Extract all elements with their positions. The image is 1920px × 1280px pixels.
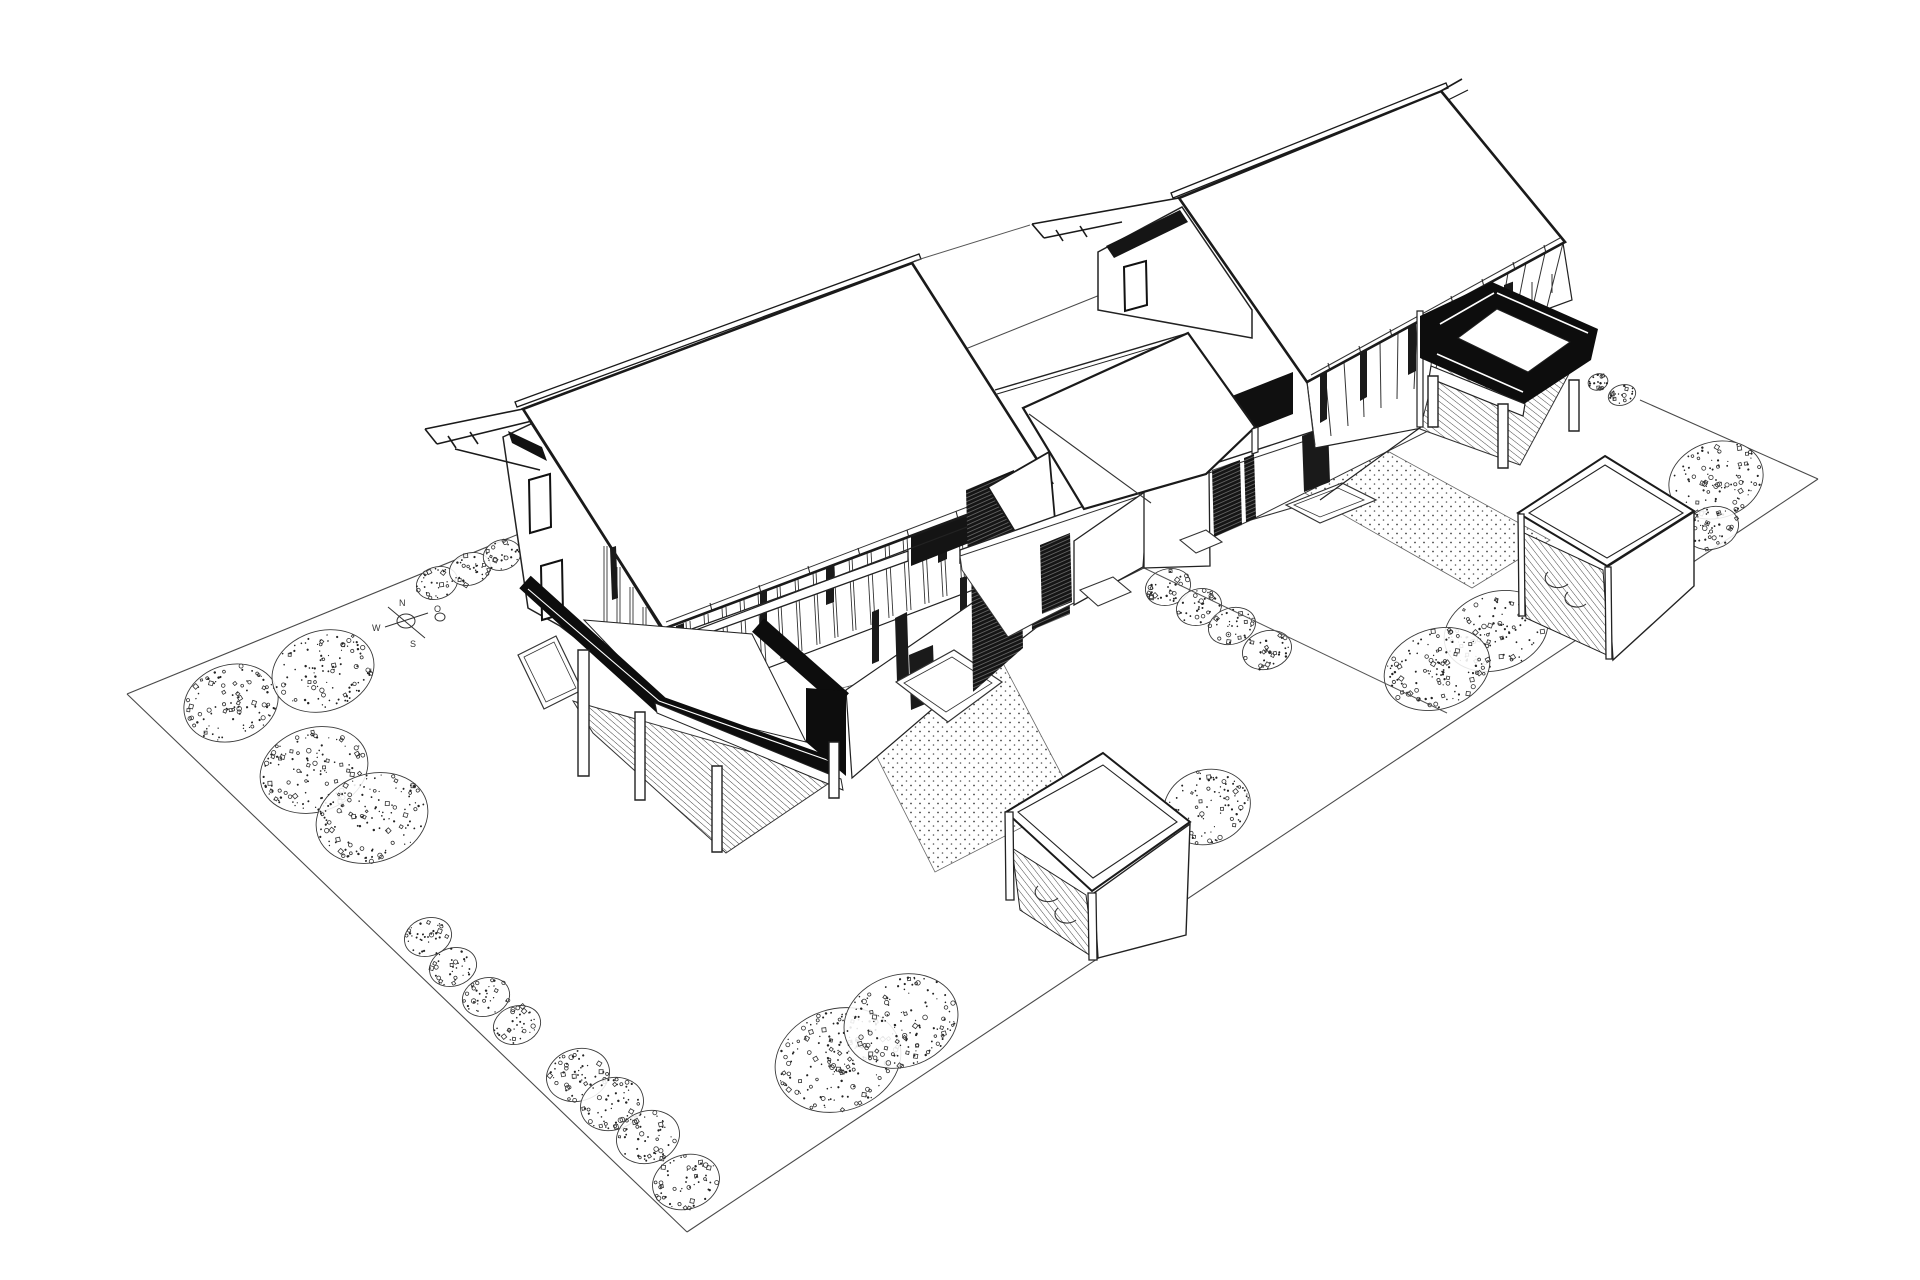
svg-text:W: W — [372, 623, 381, 633]
svg-text:O: O — [434, 604, 441, 614]
svg-text:N: N — [399, 598, 406, 608]
svg-text:S: S — [410, 639, 416, 649]
